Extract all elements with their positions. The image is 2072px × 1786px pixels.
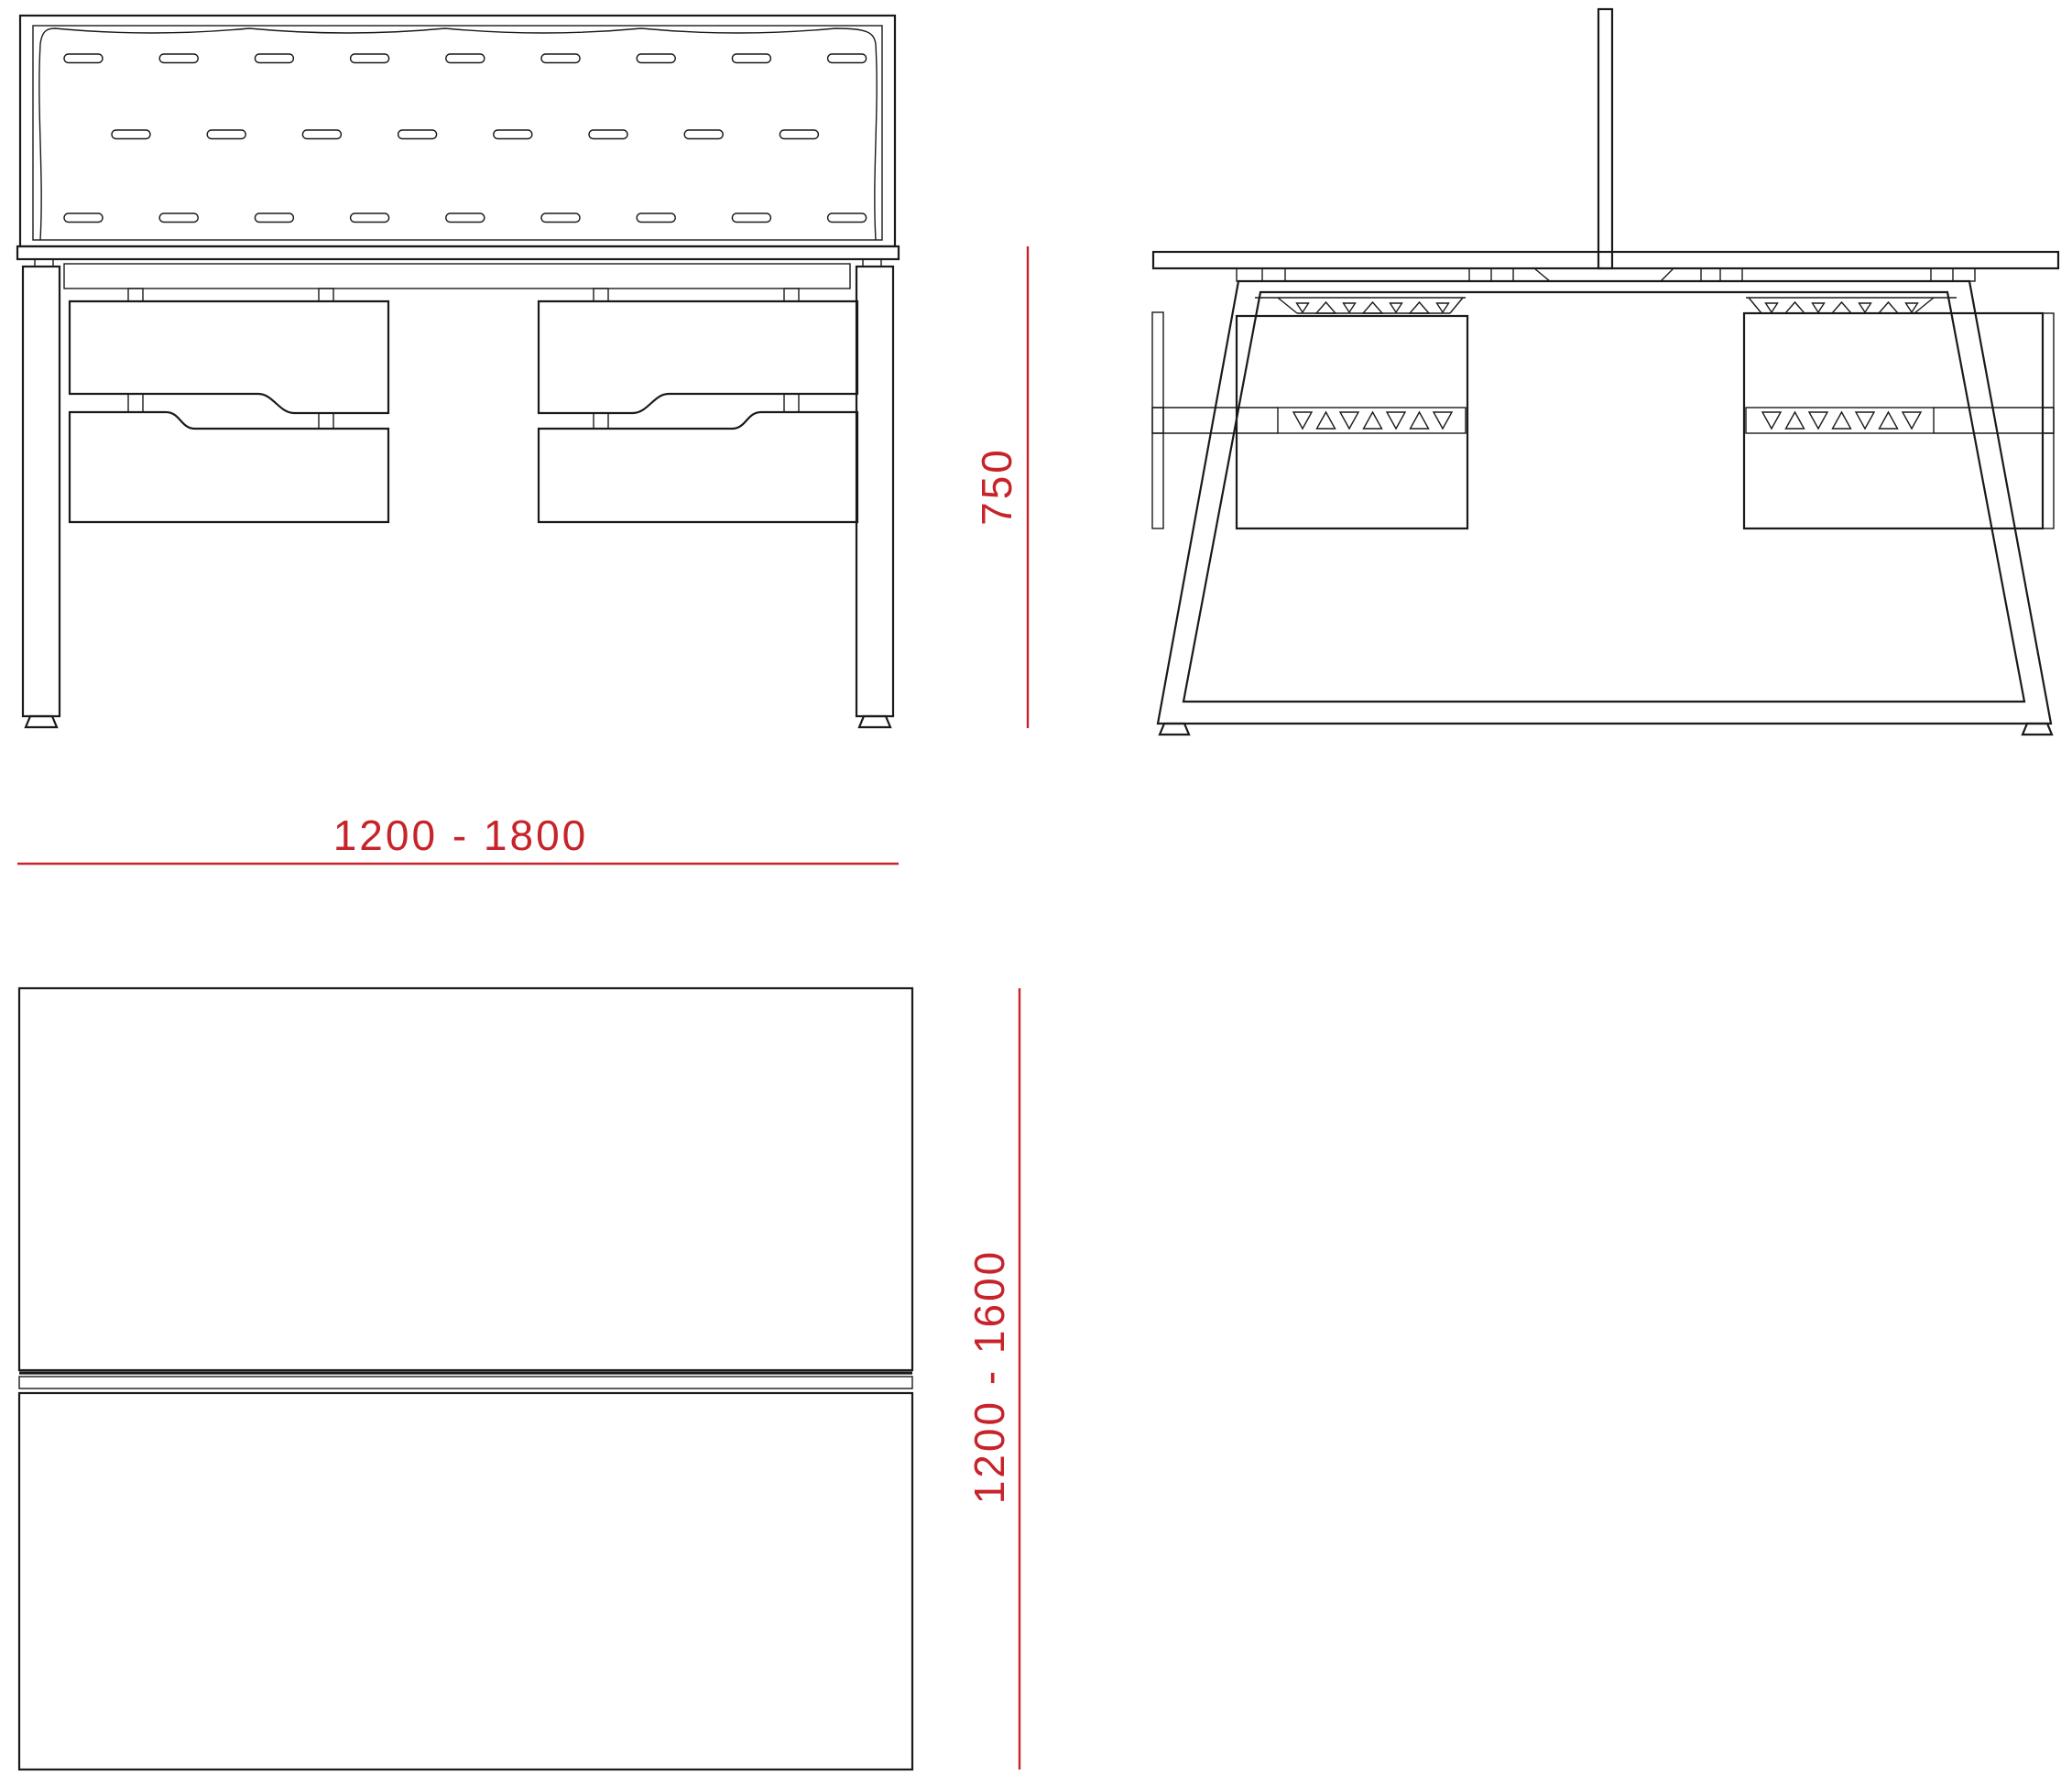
triangle-up-marker xyxy=(1879,302,1898,313)
screen-slot xyxy=(780,130,818,139)
triangle-up-marker xyxy=(1316,302,1336,313)
end-panel-notch xyxy=(1152,408,1163,433)
drawer-hanger-clip xyxy=(594,289,608,301)
drawer-hanger-clip xyxy=(319,289,333,301)
screen-slot-pattern xyxy=(64,54,867,223)
screen-slot xyxy=(112,130,150,139)
triangle-up-marker xyxy=(1786,412,1805,429)
screen-slot xyxy=(159,54,198,63)
side-desktop xyxy=(1153,252,2058,268)
dimension-width: 1200 - 1800 xyxy=(17,811,899,864)
triangle-down-marker xyxy=(1762,412,1781,429)
triangle-down-marker xyxy=(1437,303,1449,312)
front-left-leg-bracket xyxy=(35,259,53,267)
screen-slot xyxy=(302,130,341,139)
screen-slot xyxy=(446,213,485,223)
triangle-up-marker xyxy=(1363,302,1382,313)
plan-desktop-bottom xyxy=(19,1393,912,1770)
side-pedestal-right xyxy=(1744,298,2054,528)
screen-slot xyxy=(494,130,532,139)
triangle-up-marker xyxy=(1832,302,1851,313)
screen-slot xyxy=(541,54,580,63)
front-right-foot xyxy=(859,716,890,727)
screen-slot xyxy=(732,54,770,63)
triangle-down-marker xyxy=(1766,303,1778,312)
triangle-up-marker xyxy=(1880,412,1898,429)
front-left-leg xyxy=(23,267,60,716)
end-panel-edge xyxy=(2043,313,2054,528)
triangle-down-marker xyxy=(1809,412,1827,429)
side-left-foot xyxy=(1160,724,1189,735)
triangle-vent-band xyxy=(1746,408,1934,433)
a-frame-leg-inner xyxy=(1183,292,2024,702)
side-right-foot xyxy=(2023,724,2052,735)
screen-fabric-top-edge xyxy=(40,28,876,44)
plan-desktop-top xyxy=(19,988,912,1370)
drawer-hanger-clip xyxy=(594,413,608,429)
screen-slot xyxy=(207,130,245,139)
drawer-hanger-clip xyxy=(784,289,799,301)
triangle-up-marker xyxy=(1411,412,1429,429)
screen-slot xyxy=(732,213,770,223)
screen-slot xyxy=(637,54,675,63)
drawer-pedestal-right xyxy=(539,289,857,522)
triangle-up-marker xyxy=(1833,412,1851,429)
dimension-height: 750 xyxy=(973,246,1028,728)
triangle-down-marker xyxy=(1906,303,1918,312)
screen-slot xyxy=(64,213,103,223)
front-elevation-view xyxy=(17,16,899,727)
screen-slot xyxy=(828,54,867,63)
side-elevation-view xyxy=(1152,9,2058,735)
screen-slot xyxy=(255,54,293,63)
screen-frame-inner xyxy=(33,26,882,240)
triangle-down-marker xyxy=(1434,412,1452,429)
dimension-depth: 1200 - 1600 xyxy=(965,988,1020,1770)
divider-support-bracket xyxy=(1534,268,1674,281)
drawer-lower xyxy=(539,412,857,522)
triangle-up-marker xyxy=(1785,302,1805,313)
desk-drawing-canvas: 750 1200 - 1800 1200 - 1600 xyxy=(0,0,2072,1786)
plan-divider-screen xyxy=(19,1377,912,1389)
drawer-upper xyxy=(539,301,857,413)
triangle-marker-pattern xyxy=(1293,302,1921,429)
end-panel-notch xyxy=(2043,408,2054,433)
screen-fabric-right-edge xyxy=(875,44,877,240)
triangle-down-marker xyxy=(1903,412,1921,429)
triangle-down-marker xyxy=(1390,303,1402,312)
screen-slot xyxy=(446,54,485,63)
triangle-down-marker xyxy=(1293,412,1312,429)
screen-slot xyxy=(541,213,580,223)
drawer-pedestal-left xyxy=(70,289,388,522)
front-rail-beam xyxy=(64,264,850,289)
drawer-hanger-clip xyxy=(784,394,799,412)
desktop-support-blocks xyxy=(1237,268,1975,281)
screen-slot xyxy=(64,54,103,63)
screen-slot xyxy=(351,54,389,63)
screen-slot xyxy=(828,213,867,223)
screen-fabric-left-edge xyxy=(39,44,41,240)
a-frame-leg-outer xyxy=(1158,281,2051,724)
triangle-down-marker xyxy=(1344,303,1356,312)
divider-screen xyxy=(1598,9,1612,268)
triangle-up-marker xyxy=(1317,412,1336,429)
top-vent-strip xyxy=(1746,298,1957,313)
technical-drawing-sheet: 750 1200 - 1800 1200 - 1600 xyxy=(0,0,2072,1786)
front-left-foot xyxy=(26,716,57,727)
screen-slot xyxy=(589,130,627,139)
drawer-lower xyxy=(70,412,388,522)
front-right-leg xyxy=(856,267,893,716)
screen-slot xyxy=(255,213,293,223)
triangle-down-marker xyxy=(1297,303,1309,312)
screen-slot xyxy=(159,213,198,223)
screen-slot xyxy=(398,130,437,139)
drawer-hanger-clip xyxy=(319,413,333,429)
triangle-up-marker xyxy=(1410,302,1429,313)
triangle-down-marker xyxy=(1387,412,1405,429)
dimension-label-width: 1200 - 1800 xyxy=(333,811,589,859)
front-desktop xyxy=(17,246,899,259)
dimension-label-height: 750 xyxy=(973,447,1020,526)
triangle-down-marker xyxy=(1859,303,1871,312)
front-right-leg-bracket xyxy=(863,259,881,267)
screen-slot xyxy=(684,130,723,139)
drawer-hanger-clip xyxy=(128,394,143,412)
triangle-down-marker xyxy=(1340,412,1358,429)
drawer-hanger-clip xyxy=(128,289,143,301)
dimension-label-depth: 1200 - 1600 xyxy=(965,1249,1013,1505)
screen-slot xyxy=(351,213,389,223)
top-vent-strip xyxy=(1255,298,1466,313)
screen-slot xyxy=(637,213,675,223)
triangle-up-marker xyxy=(1364,412,1382,429)
screen-frame-outer xyxy=(20,16,895,246)
triangle-down-marker xyxy=(1813,303,1825,312)
drawer-upper xyxy=(70,301,388,413)
end-panel-edge xyxy=(1152,312,1163,528)
pedestal-box xyxy=(1237,316,1467,528)
triangle-down-marker xyxy=(1856,412,1874,429)
plan-view xyxy=(19,988,912,1770)
